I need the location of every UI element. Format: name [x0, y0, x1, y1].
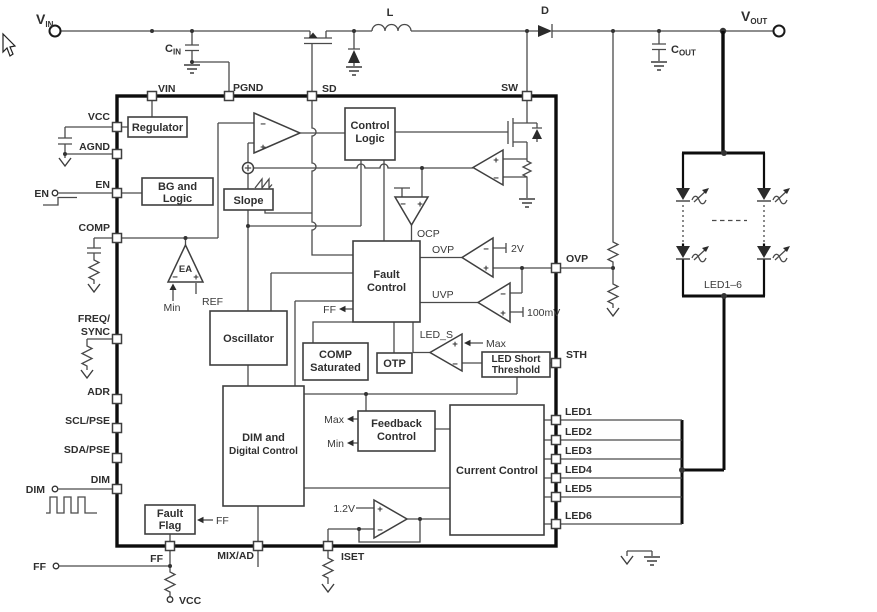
- max-fb-arrowhead: [347, 416, 354, 422]
- led-icon: [676, 188, 690, 201]
- comp-saturated-label-2: Saturated: [310, 362, 361, 374]
- regulator-label: Regulator: [132, 122, 184, 134]
- cs-minus: −: [493, 173, 499, 184]
- dim-pwm-waveform-icon: [46, 497, 97, 513]
- pin-label-pgnd: PGND: [233, 82, 264, 94]
- ovp-resistor-bottom: [608, 282, 618, 306]
- led-light-arrow-icon: [692, 246, 709, 262]
- pin-comp: [113, 234, 122, 243]
- min-fb-arrowhead: [347, 440, 354, 446]
- body-diode-symbol: [532, 129, 542, 139]
- ff-fault-arrowhead: [339, 306, 346, 312]
- pin-label-vcc: VCC: [88, 111, 111, 123]
- ocp-label: OCP: [417, 228, 440, 240]
- led-short-label-1: LED Short: [492, 354, 542, 365]
- mouse-cursor-icon: [3, 34, 15, 56]
- ea-plus: +: [193, 272, 199, 283]
- pin-label-adr: ADR: [87, 386, 110, 398]
- otp-label: OTP: [383, 358, 406, 370]
- pin-sth: [552, 359, 561, 368]
- min-ea-label: Min: [164, 302, 181, 314]
- comp-saturated-label-1: COMP: [319, 349, 352, 361]
- led-light-arrow-icon: [773, 246, 790, 262]
- vin-terminal-label: VIN: [36, 11, 54, 29]
- pin-led3: [552, 455, 561, 464]
- pin-adr: [113, 395, 122, 404]
- pin-label-led3: LED3: [565, 445, 592, 457]
- bottom-externals: FF VCC: [33, 551, 334, 608]
- bg-logic-label-1: BG and: [158, 181, 197, 193]
- inductor-symbol: [372, 25, 411, 32]
- pin-label-agnd: AGND: [79, 141, 110, 153]
- ff-fault-label: FF: [323, 304, 336, 316]
- fault-control-label-1: Fault: [373, 269, 400, 281]
- uvp-signal-label: UVP: [432, 289, 454, 301]
- pin-iset: [324, 542, 333, 551]
- iset-resistor: [323, 556, 333, 580]
- fault-control-label-2: Control: [367, 282, 406, 294]
- ea-minus: −: [172, 272, 178, 283]
- pin-label-en: EN: [95, 179, 110, 191]
- ground-legend-wires: [627, 551, 652, 556]
- pin-label-led6: LED6: [565, 510, 592, 522]
- pin-label-ovp: OVP: [566, 253, 588, 265]
- ff-flag-label: FF: [216, 515, 229, 527]
- leds-minus: −: [452, 359, 458, 370]
- led-icon: [757, 188, 771, 201]
- pin-label-led4: LED4: [565, 464, 592, 476]
- pin-label-vin: VIN: [158, 83, 176, 95]
- dim-terminal: [52, 486, 58, 492]
- freq-resistor: [82, 344, 92, 368]
- pin-label-sda: SDA/PSE: [64, 444, 110, 456]
- cs-plus: +: [493, 155, 499, 166]
- fault-flag-label-2: Flag: [159, 520, 182, 532]
- vcc-terminal: [167, 597, 173, 603]
- pin-label-sd: SD: [322, 83, 337, 95]
- ovp-plus: +: [483, 263, 489, 274]
- pin-label-scl: SCL/PSE: [65, 415, 110, 427]
- pin-label-sth: STH: [566, 349, 587, 361]
- pin-sw: [523, 92, 532, 101]
- pin-en: [113, 189, 122, 198]
- led-string: LED1–6: [561, 31, 791, 565]
- pin-sda-pse: [113, 454, 122, 463]
- vout-terminal: [774, 26, 785, 37]
- min-fb-label: Min: [327, 438, 344, 450]
- pwm-minus: −: [260, 119, 266, 130]
- ground-earth-icon: [644, 557, 660, 565]
- ff-pullup-resistor: [165, 570, 175, 594]
- dim-digital-label-1: DIM and: [242, 432, 285, 444]
- pin-sd: [308, 92, 317, 101]
- uvp-minus: −: [500, 289, 506, 300]
- cout-label: COUT: [671, 44, 696, 58]
- ovp-threshold-label: 2V: [511, 243, 524, 255]
- max-led-arrowhead: [464, 340, 471, 346]
- bg-logic-label-2: Logic: [163, 193, 192, 205]
- pin-mixad: [254, 542, 263, 551]
- ground-earth-icon: [651, 62, 667, 70]
- pin-label-comp: COMP: [79, 222, 111, 234]
- sawtooth-icon: [255, 179, 272, 188]
- led-legs: [683, 153, 764, 296]
- led-driver-block-diagram: VIN VOUT CIN COUT L D LED1–6: [0, 0, 877, 612]
- feedback-label-2: Control: [377, 431, 416, 443]
- pin-ff: [166, 542, 175, 551]
- ground-arrow-icon: [607, 308, 619, 316]
- fault-flag-label-1: Fault: [157, 508, 184, 520]
- inductor-label: L: [387, 7, 394, 19]
- ground-earth-icon: [184, 65, 200, 73]
- current-sense-sum-wire: [254, 164, 474, 197]
- led-light-arrow-icon: [773, 188, 790, 204]
- pin-label-mixad: MIX/AD: [217, 550, 254, 562]
- vcc-terminal-label: VCC: [179, 595, 202, 607]
- ff-flag-arrowhead: [197, 517, 204, 523]
- dim-terminal-label: DIM: [26, 484, 46, 496]
- ground-arrow-icon: [59, 158, 71, 166]
- comp-resistor: [89, 258, 99, 282]
- ground-arrow-icon: [88, 284, 100, 292]
- pin-label-led5: LED5: [565, 483, 592, 495]
- cout-cap-wires: [652, 31, 666, 61]
- pin-label-dim: DIM: [91, 474, 111, 486]
- current-control-pin-stubs: [544, 420, 552, 524]
- iset-plus: +: [377, 504, 383, 515]
- pin-label-led1: LED1: [565, 406, 592, 418]
- ovp-sense-wire: [561, 31, 614, 308]
- ocp-minus: −: [400, 199, 406, 210]
- pin-ovp: [552, 264, 561, 273]
- pin-led4: [552, 474, 561, 483]
- vref-label: 1.2V: [333, 503, 355, 515]
- led-light-arrow-icon: [692, 188, 709, 204]
- slope-label: Slope: [234, 195, 264, 207]
- dim-digital-label-2: Digital Control: [229, 446, 298, 457]
- control-logic-label-2: Logic: [355, 133, 384, 145]
- current-control-label: Current Control: [456, 465, 538, 477]
- leds-plus: +: [452, 339, 458, 350]
- led-string-label: LED1–6: [704, 279, 742, 291]
- ocp-plus: +: [417, 199, 423, 210]
- ovp-resistor-top: [608, 240, 618, 264]
- ground-earth-icon: [519, 199, 535, 207]
- led-s-label: LED_S: [420, 329, 453, 341]
- ea-input-stubs: [173, 283, 196, 301]
- iset-minus: −: [377, 525, 383, 536]
- pin-led6: [552, 520, 561, 529]
- pin-agnd: [113, 150, 122, 159]
- pin-label-sync: SYNC: [81, 326, 111, 338]
- boost-diode-symbol: [538, 25, 552, 37]
- pin-label-sw: SW: [501, 82, 518, 94]
- ground-arrow-icon: [81, 370, 93, 378]
- pin-label-freq: FREQ/: [78, 313, 110, 325]
- gate-drive-mosfet-wires: [395, 101, 542, 199]
- pin-dim: [113, 485, 122, 494]
- led-continuation-dots: [683, 205, 764, 242]
- pin-vin: [148, 92, 157, 101]
- ground-arrow-icon: [322, 584, 334, 592]
- pin-led2: [552, 436, 561, 445]
- ground-earth-icon: [346, 67, 362, 75]
- max-led-label: Max: [486, 338, 507, 350]
- ground-arrow-icon: [621, 556, 633, 564]
- ff-terminal: [53, 563, 59, 569]
- en-terminal-label: EN: [34, 188, 49, 200]
- en-terminal: [52, 190, 58, 196]
- pin-scl-pse: [113, 424, 122, 433]
- led-icon: [757, 246, 771, 259]
- ff-terminal-label: FF: [33, 561, 46, 573]
- uvp-threshold-label: 100mV: [527, 307, 560, 319]
- vout-terminal-label: VOUT: [741, 8, 767, 26]
- cin-label: CIN: [165, 43, 181, 57]
- ea-label: EA: [179, 264, 192, 275]
- led-short-label-2: Threshold: [492, 365, 540, 376]
- pin-led1: [552, 416, 561, 425]
- clamp-diode-symbol: [348, 50, 360, 63]
- pin-led5: [552, 493, 561, 502]
- max-fb-label: Max: [324, 414, 345, 426]
- uvp-plus: +: [500, 308, 506, 319]
- feedback-label-1: Feedback: [371, 418, 423, 430]
- ovp-minus: −: [483, 244, 489, 255]
- pin-label-ff: FF: [150, 553, 163, 565]
- oscillator-label: Oscillator: [223, 333, 274, 345]
- pin-label-iset: ISET: [341, 551, 365, 563]
- led-icon: [676, 246, 690, 259]
- pin-vcc: [113, 123, 122, 132]
- ovp-signal-label: OVP: [432, 244, 454, 256]
- pwm-plus: +: [260, 142, 266, 153]
- pin-freq-sync: [113, 335, 122, 344]
- control-logic-label-1: Control: [350, 120, 389, 132]
- sense-resistor: [523, 160, 531, 178]
- min-arrowhead: [170, 284, 177, 291]
- pin-label-led2: LED2: [565, 426, 592, 438]
- led-return-bus: [682, 296, 724, 524]
- diode-label: D: [541, 5, 549, 17]
- ref-label: REF: [202, 296, 223, 308]
